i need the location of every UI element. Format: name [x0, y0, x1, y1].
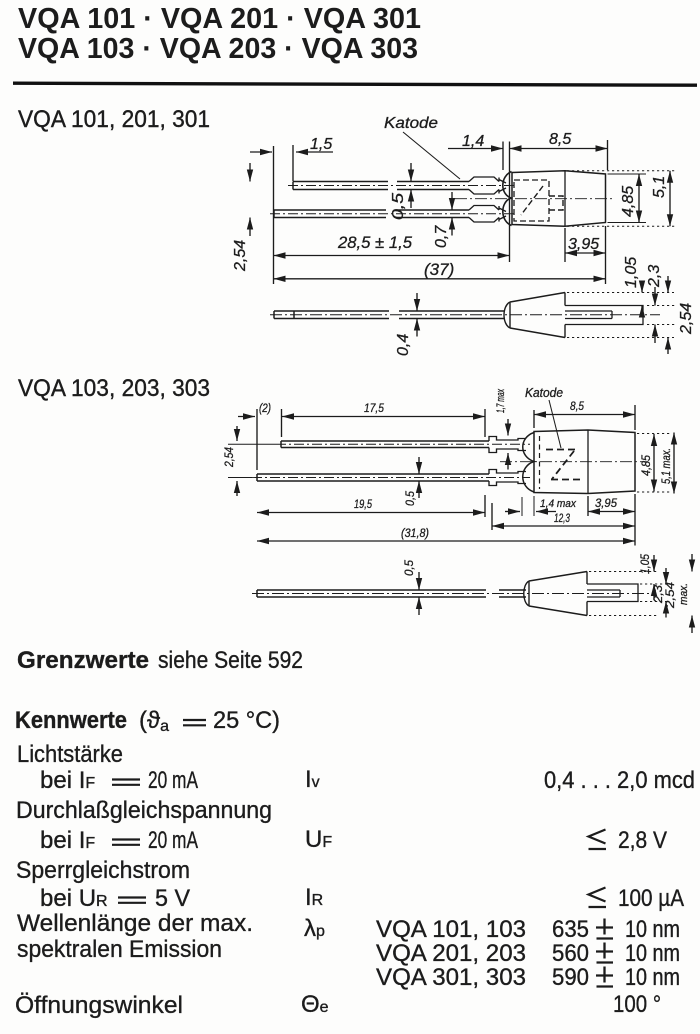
svg-text:2,54: 2,54 — [232, 240, 249, 272]
svg-text:Grenzwerte: Grenzwerte — [17, 647, 149, 674]
svg-text:Durchlaßgleichspannung: Durchlaßgleichspannung — [16, 797, 272, 824]
svg-text:25 °C): 25 °C) — [213, 707, 280, 734]
svg-text:bei UR: bei UR — [40, 885, 108, 912]
svg-text:λp: λp — [304, 915, 325, 942]
svg-text:VQA 201, 203: VQA 201, 203 — [376, 940, 526, 967]
svg-text:8,5: 8,5 — [549, 131, 571, 148]
svg-text:100 µA: 100 µA — [618, 885, 684, 912]
svg-text:100 °: 100 ° — [613, 991, 661, 1018]
svg-text:(ϑa: (ϑa — [139, 707, 169, 735]
svg-text:siehe Seite 592: siehe Seite 592 — [158, 647, 303, 674]
svg-text:19,5: 19,5 — [354, 497, 372, 511]
svg-text:Lichtstärke: Lichtstärke — [17, 741, 123, 768]
svg-text:560: 560 — [552, 940, 589, 967]
svg-text:28,5 ± 1,5: 28,5 ± 1,5 — [337, 233, 413, 252]
svg-text:(2): (2) — [259, 401, 271, 415]
svg-text:3,95: 3,95 — [595, 496, 617, 510]
svg-text:Θe: Θe — [301, 991, 329, 1018]
svg-text:3,95: 3,95 — [568, 236, 599, 253]
svg-text:5,1: 5,1 — [651, 176, 668, 198]
svg-text:spektralen Emission: spektralen Emission — [17, 936, 222, 963]
svg-text:Öffnungswinkel: Öffnungswinkel — [15, 992, 183, 1019]
svg-text:2,54: 2,54 — [678, 303, 695, 335]
svg-text:10 nm: 10 nm — [625, 916, 680, 943]
svg-text:20 mA: 20 mA — [148, 827, 198, 854]
svg-text:4,85: 4,85 — [639, 455, 653, 476]
svg-text:bei IF: bei IF — [40, 767, 95, 794]
svg-text:0,5: 0,5 — [403, 491, 417, 506]
svg-text:10 nm: 10 nm — [625, 964, 680, 991]
svg-text:1,05: 1,05 — [638, 554, 652, 574]
svg-text:5 V: 5 V — [155, 885, 190, 912]
svg-text:2,8 V: 2,8 V — [618, 827, 667, 854]
svg-text:5,1 max.: 5,1 max. — [659, 448, 673, 484]
svg-text:VQA 101, 201, 301: VQA 101, 201, 301 — [18, 106, 210, 133]
svg-text:Kennwerte: Kennwerte — [15, 707, 127, 734]
svg-text:0,5: 0,5 — [402, 560, 416, 576]
svg-text:1,05: 1,05 — [623, 257, 640, 288]
svg-text:2,54: 2,54 — [222, 447, 236, 468]
svg-text:590: 590 — [552, 964, 589, 991]
svg-text:VQA 103, 203, 303: VQA 103, 203, 303 — [18, 375, 210, 402]
svg-text:2,54: 2,54 — [663, 582, 677, 609]
svg-text:IR: IR — [305, 884, 323, 911]
svg-text:bei IF: bei IF — [40, 827, 95, 854]
svg-text:1,7 max: 1,7 max — [495, 389, 507, 413]
svg-text:Katode: Katode — [525, 386, 563, 400]
svg-text:0,7: 0,7 — [433, 225, 450, 248]
svg-text:17,5: 17,5 — [364, 401, 384, 415]
svg-text:Sperrgleichstrom: Sperrgleichstrom — [16, 857, 190, 884]
svg-text:VQA 301, 303: VQA 301, 303 — [376, 964, 526, 991]
svg-text:0,4: 0,4 — [395, 334, 412, 356]
svg-text:VQA 103 · VQA 203 · VQA 303: VQA 103 · VQA 203 · VQA 303 — [18, 33, 418, 65]
svg-text:VQA 101 · VQA 201 · VQA 301: VQA 101 · VQA 201 · VQA 301 — [18, 3, 421, 35]
svg-text:UF: UF — [305, 826, 332, 853]
svg-text:(37): (37) — [424, 260, 454, 279]
svg-text:VQA 101, 103: VQA 101, 103 — [376, 916, 526, 943]
svg-text:Iv: Iv — [305, 766, 320, 793]
svg-text:1,5: 1,5 — [310, 136, 332, 153]
svg-text:0,5: 0,5 — [390, 193, 407, 220]
svg-text:20 mA: 20 mA — [148, 767, 198, 794]
svg-text:max.: max. — [678, 583, 690, 605]
svg-text:Katode: Katode — [384, 115, 438, 132]
svg-text:1,4: 1,4 — [462, 133, 484, 150]
svg-text:Wellenlänge der max.: Wellenlänge der max. — [17, 910, 253, 937]
svg-text:2,3: 2,3 — [646, 265, 663, 288]
svg-text:10 nm: 10 nm — [625, 940, 680, 967]
svg-text:4,85: 4,85 — [620, 186, 637, 217]
svg-text:635: 635 — [552, 916, 589, 943]
svg-text:1,4 max: 1,4 max — [540, 498, 576, 510]
svg-text:12,3: 12,3 — [554, 511, 570, 525]
svg-text:0,4 . . . 2,0 mcd: 0,4 . . . 2,0 mcd — [544, 767, 695, 794]
svg-text:8,5: 8,5 — [570, 399, 584, 413]
svg-text:(31,8): (31,8) — [401, 526, 429, 540]
